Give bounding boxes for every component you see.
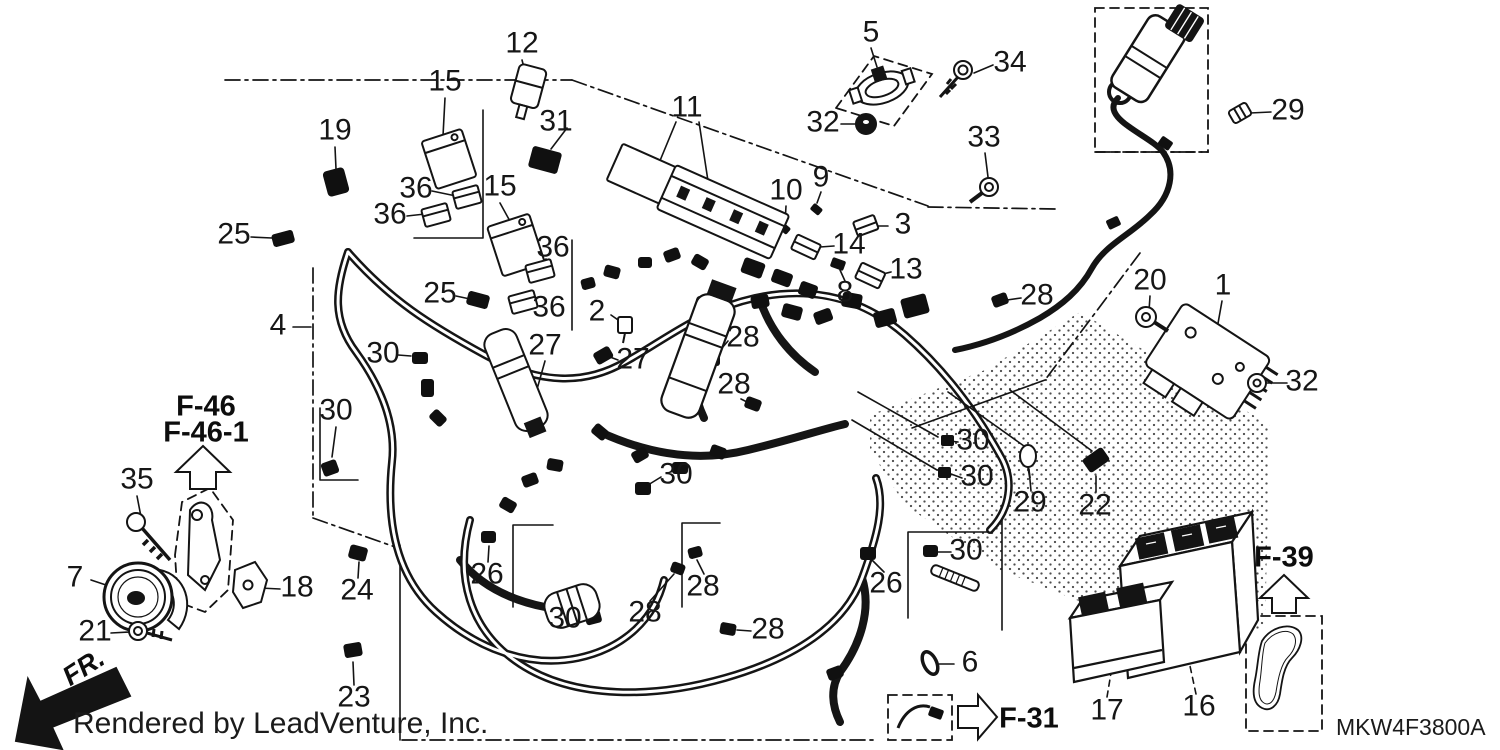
part-callout-15[interactable]: 15: [428, 67, 461, 97]
part-callout-30[interactable]: 30: [960, 462, 993, 492]
part-callout-11[interactable]: 11: [671, 93, 702, 123]
part-callout-36[interactable]: 36: [532, 293, 565, 323]
part-callout-27[interactable]: 27: [528, 331, 561, 361]
part-callout-34[interactable]: 34: [993, 48, 1026, 78]
part-callout-25[interactable]: 25: [217, 220, 250, 250]
part-callout-5[interactable]: 5: [863, 18, 880, 48]
part-callout-32[interactable]: 32: [806, 108, 839, 138]
part-callout-18[interactable]: 18: [280, 573, 313, 603]
part-callout-30[interactable]: 30: [548, 604, 581, 634]
part-callout-30[interactable]: 30: [956, 426, 989, 456]
part-callout-28[interactable]: 28: [726, 323, 759, 353]
part-callout-22[interactable]: 22: [1078, 491, 1111, 521]
part-callout-17[interactable]: 17: [1090, 696, 1123, 726]
part-callout-7[interactable]: 7: [67, 563, 84, 593]
ref-label-f31[interactable]: F-31: [999, 705, 1059, 734]
part-callout-4[interactable]: 4: [270, 311, 287, 341]
part-callout-19[interactable]: 19: [318, 116, 351, 146]
part-callout-30[interactable]: 30: [319, 396, 352, 426]
part-callout-30[interactable]: 30: [366, 339, 399, 369]
part-callout-2[interactable]: 2: [589, 297, 606, 327]
part-callout-6[interactable]: 6: [962, 648, 979, 678]
diagram-part-code: MKW4F3800A: [1336, 714, 1486, 741]
part-callout-32[interactable]: 32: [1285, 367, 1318, 397]
part-callout-15[interactable]: 15: [483, 172, 516, 202]
part-callout-21[interactable]: 21: [78, 617, 111, 647]
part-callout-30[interactable]: 30: [949, 536, 982, 566]
part-callout-27[interactable]: 27: [616, 345, 649, 375]
part-callout-36[interactable]: 36: [373, 200, 406, 230]
part-callout-13[interactable]: 13: [889, 255, 922, 285]
f46-up-arrow-icon: [176, 446, 230, 489]
part-callout-33[interactable]: 33: [967, 123, 1000, 153]
ref-label-f39[interactable]: F-39: [1254, 544, 1314, 573]
part-callout-10[interactable]: 10: [769, 176, 802, 206]
part-callout-1[interactable]: 1: [1215, 271, 1232, 301]
f31-right-arrow-icon: [958, 695, 997, 739]
part-callout-12[interactable]: 12: [505, 29, 538, 59]
rendered-by-credit: Rendered by LeadVenture, Inc.: [73, 707, 488, 741]
part-callout-28[interactable]: 28: [1020, 281, 1053, 311]
part-callout-30[interactable]: 30: [659, 460, 692, 490]
part-callout-28[interactable]: 28: [751, 615, 784, 645]
part-callout-26[interactable]: 26: [869, 569, 902, 599]
part-callout-31[interactable]: 31: [539, 107, 572, 137]
part-callout-25[interactable]: 25: [423, 279, 456, 309]
part-callout-14[interactable]: 14: [832, 230, 865, 260]
part-callout-9[interactable]: 9: [813, 163, 830, 193]
part-callout-28[interactable]: 28: [686, 572, 719, 602]
f39-up-arrow-icon: [1260, 575, 1308, 613]
part-callout-28[interactable]: 28: [717, 370, 750, 400]
ref-label-f46-1[interactable]: F-46-1: [163, 419, 248, 448]
part-callout-29[interactable]: 29: [1271, 96, 1304, 126]
part-callout-35[interactable]: 35: [120, 465, 153, 495]
parts-diagram-page: 1512193111534293233361536910253631413836…: [0, 0, 1500, 750]
part-callout-24[interactable]: 24: [340, 576, 373, 606]
part-callout-3[interactable]: 3: [895, 210, 912, 240]
part-callout-29[interactable]: 29: [1013, 488, 1046, 518]
part-callout-16[interactable]: 16: [1182, 692, 1215, 722]
part-callout-26[interactable]: 26: [470, 560, 503, 590]
part-callout-20[interactable]: 20: [1133, 266, 1166, 296]
part-callout-28[interactable]: 28: [628, 598, 661, 628]
part-callout-8[interactable]: 8: [837, 278, 854, 308]
part-callout-36[interactable]: 36: [536, 233, 569, 263]
